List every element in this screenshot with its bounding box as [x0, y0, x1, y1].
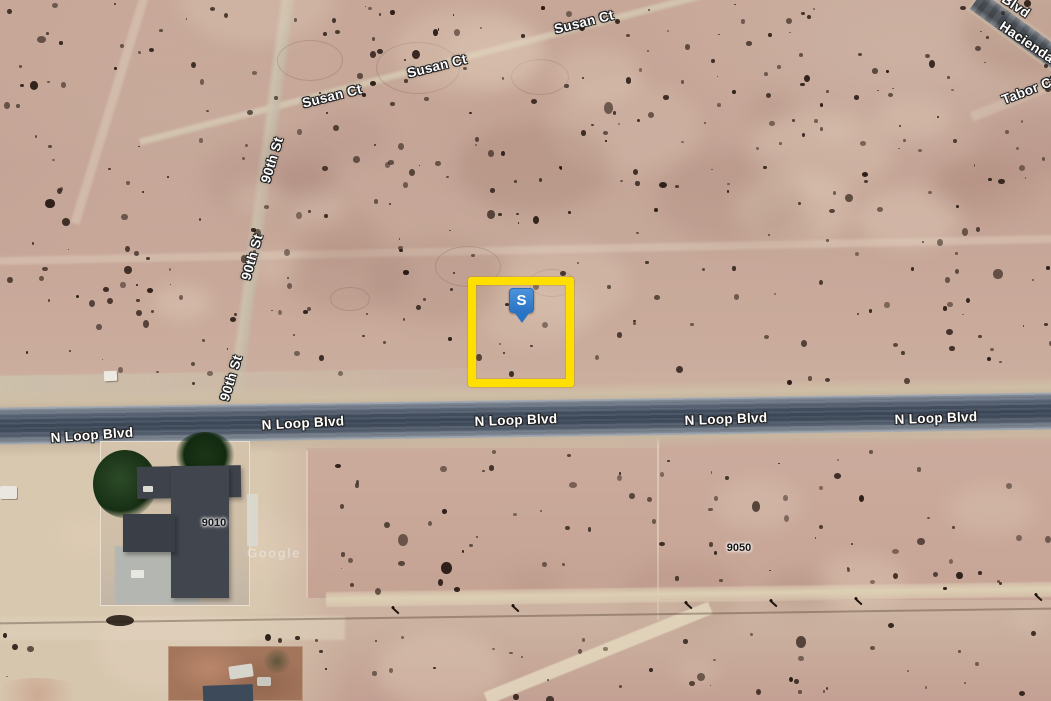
road-label-n-loop-blvd-5: N Loop Blvd: [894, 409, 977, 427]
map-marker-label: S: [516, 292, 526, 309]
road-label-n-loop-blvd-3: N Loop Blvd: [474, 411, 557, 429]
road-label-tabor-ct: Tabor Ct: [1000, 73, 1051, 107]
road-label-susan-ct-3: Susan Ct: [553, 7, 616, 36]
satellite-map-canvas[interactable]: N Loop BlvdN Loop BlvdN Loop BlvdN Loop …: [0, 0, 1051, 701]
road-label-90th-st-2: 90th St: [238, 232, 265, 281]
google-watermark: Google: [247, 546, 301, 561]
road-label-n-loop-blvd-2: N Loop Blvd: [261, 413, 344, 432]
road-label-susan-ct-2: Susan Ct: [406, 51, 469, 80]
lot-number-9010: 9010: [202, 517, 226, 529]
road-label-n-loop-blvd-4: N Loop Blvd: [684, 410, 767, 428]
road-label-90th-st-3: 90th St: [217, 353, 245, 402]
road-label-susan-ct-1: Susan Ct: [301, 81, 364, 110]
lot-number-9050: 9050: [727, 542, 751, 554]
map-marker-pin[interactable]: S: [509, 288, 534, 313]
road-label-n-loop-blvd-1: N Loop Blvd: [50, 425, 134, 446]
road-label-hacienda: Hacienda: [997, 18, 1051, 65]
road-label-90th-st-1: 90th St: [258, 135, 286, 184]
